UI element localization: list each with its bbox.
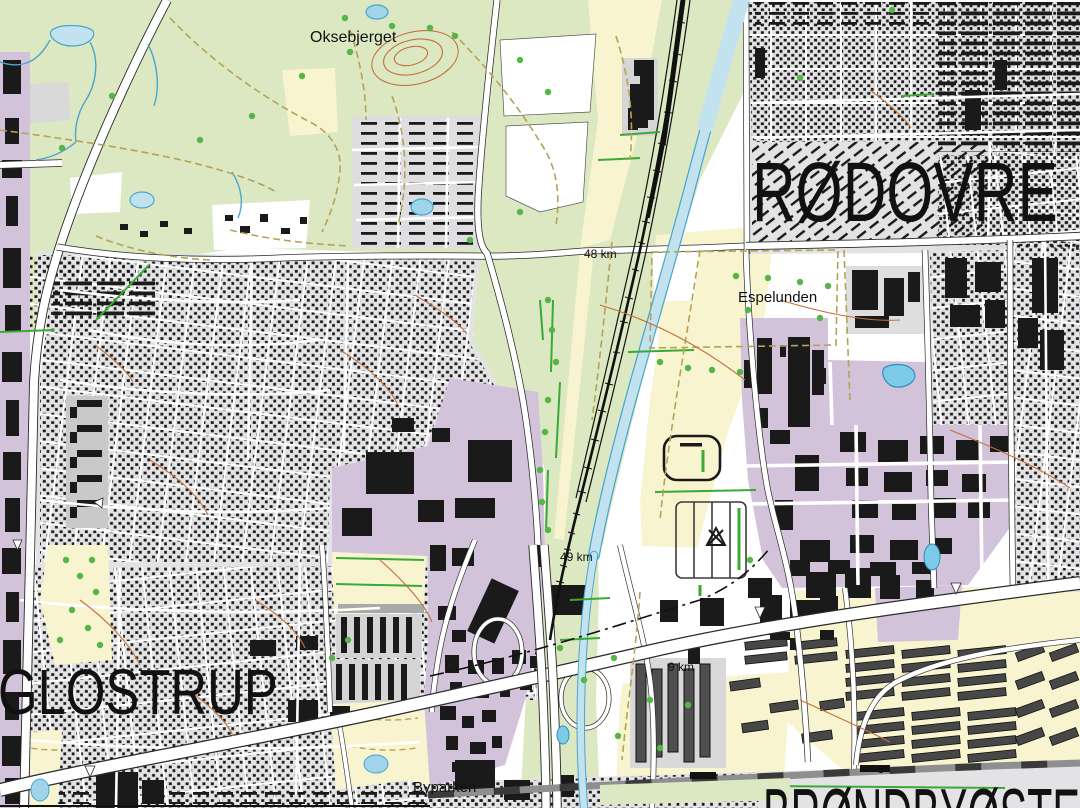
- svg-text:9 km: 9 km: [668, 660, 694, 674]
- svg-text:Espelunden: Espelunden: [738, 289, 817, 306]
- svg-text:49 km: 49 km: [560, 550, 593, 564]
- svg-text:Byparken: Byparken: [413, 779, 476, 796]
- svg-text:Oksebjerget: Oksebjerget: [310, 29, 397, 46]
- svg-text:GLOSTRUP: GLOSTRUP: [0, 658, 278, 729]
- svg-text:48 km: 48 km: [584, 247, 617, 261]
- svg-text:RØDOVRE: RØDOVRE: [752, 145, 1058, 239]
- svg-text:BRØNDBYØSTE: BRØNDBYØSTE: [763, 773, 1080, 808]
